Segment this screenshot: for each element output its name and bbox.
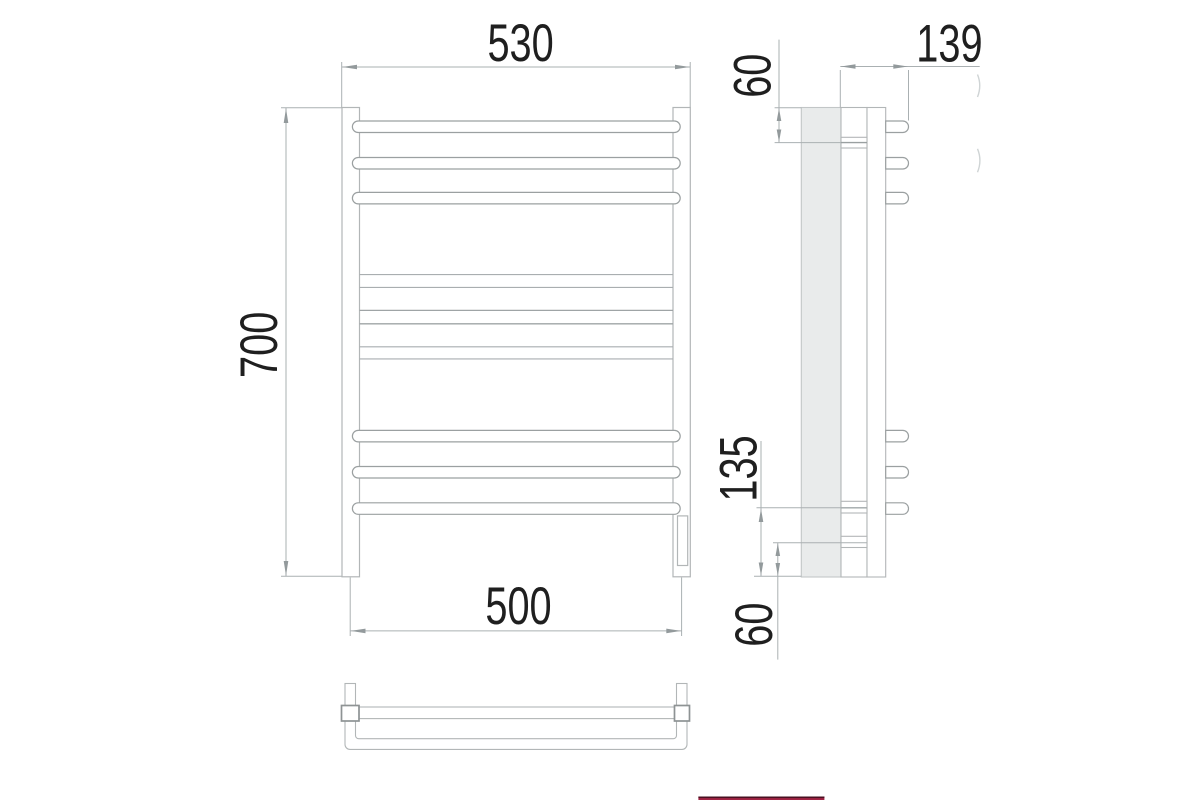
svg-text:700: 700	[229, 312, 288, 378]
svg-text:60: 60	[724, 602, 783, 646]
svg-text:500: 500	[485, 576, 551, 635]
svg-text:60: 60	[723, 54, 782, 98]
svg-text:135: 135	[709, 435, 768, 501]
svg-text:139: 139	[916, 14, 982, 73]
svg-text:530: 530	[487, 13, 553, 72]
